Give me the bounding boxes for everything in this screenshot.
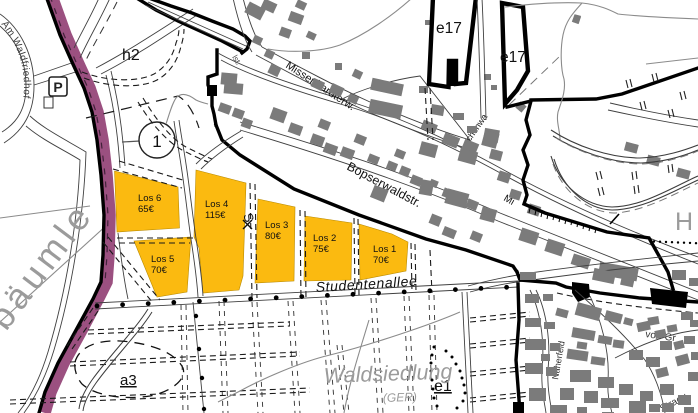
svg-text:Los 3: Los 3 — [265, 220, 288, 231]
svg-text:a3: a3 — [120, 372, 137, 389]
svg-text:Los 4: Los 4 — [205, 199, 228, 210]
svg-text:e17: e17 — [500, 49, 526, 66]
svg-text:Los 6: Los 6 — [138, 193, 161, 204]
svg-text:70€: 70€ — [151, 265, 168, 276]
svg-text:h2: h2 — [122, 47, 140, 64]
svg-text:P: P — [53, 79, 62, 95]
svg-text:Waldsiedlung: Waldsiedlung — [323, 360, 452, 388]
svg-text:1: 1 — [152, 132, 161, 151]
svg-text:75€: 75€ — [313, 244, 330, 255]
svg-text:70€: 70€ — [373, 255, 390, 266]
svg-text:Los 5: Los 5 — [151, 254, 174, 265]
svg-text:(GER): (GER) — [383, 390, 417, 405]
svg-text:80€: 80€ — [265, 231, 282, 242]
svg-text:Los 2: Los 2 — [313, 233, 336, 244]
svg-text:H: H — [675, 208, 693, 236]
svg-text:115€: 115€ — [205, 210, 226, 221]
svg-text:65€: 65€ — [138, 204, 155, 215]
svg-text:e17: e17 — [436, 20, 462, 37]
svg-text:Los 1: Los 1 — [373, 244, 396, 255]
